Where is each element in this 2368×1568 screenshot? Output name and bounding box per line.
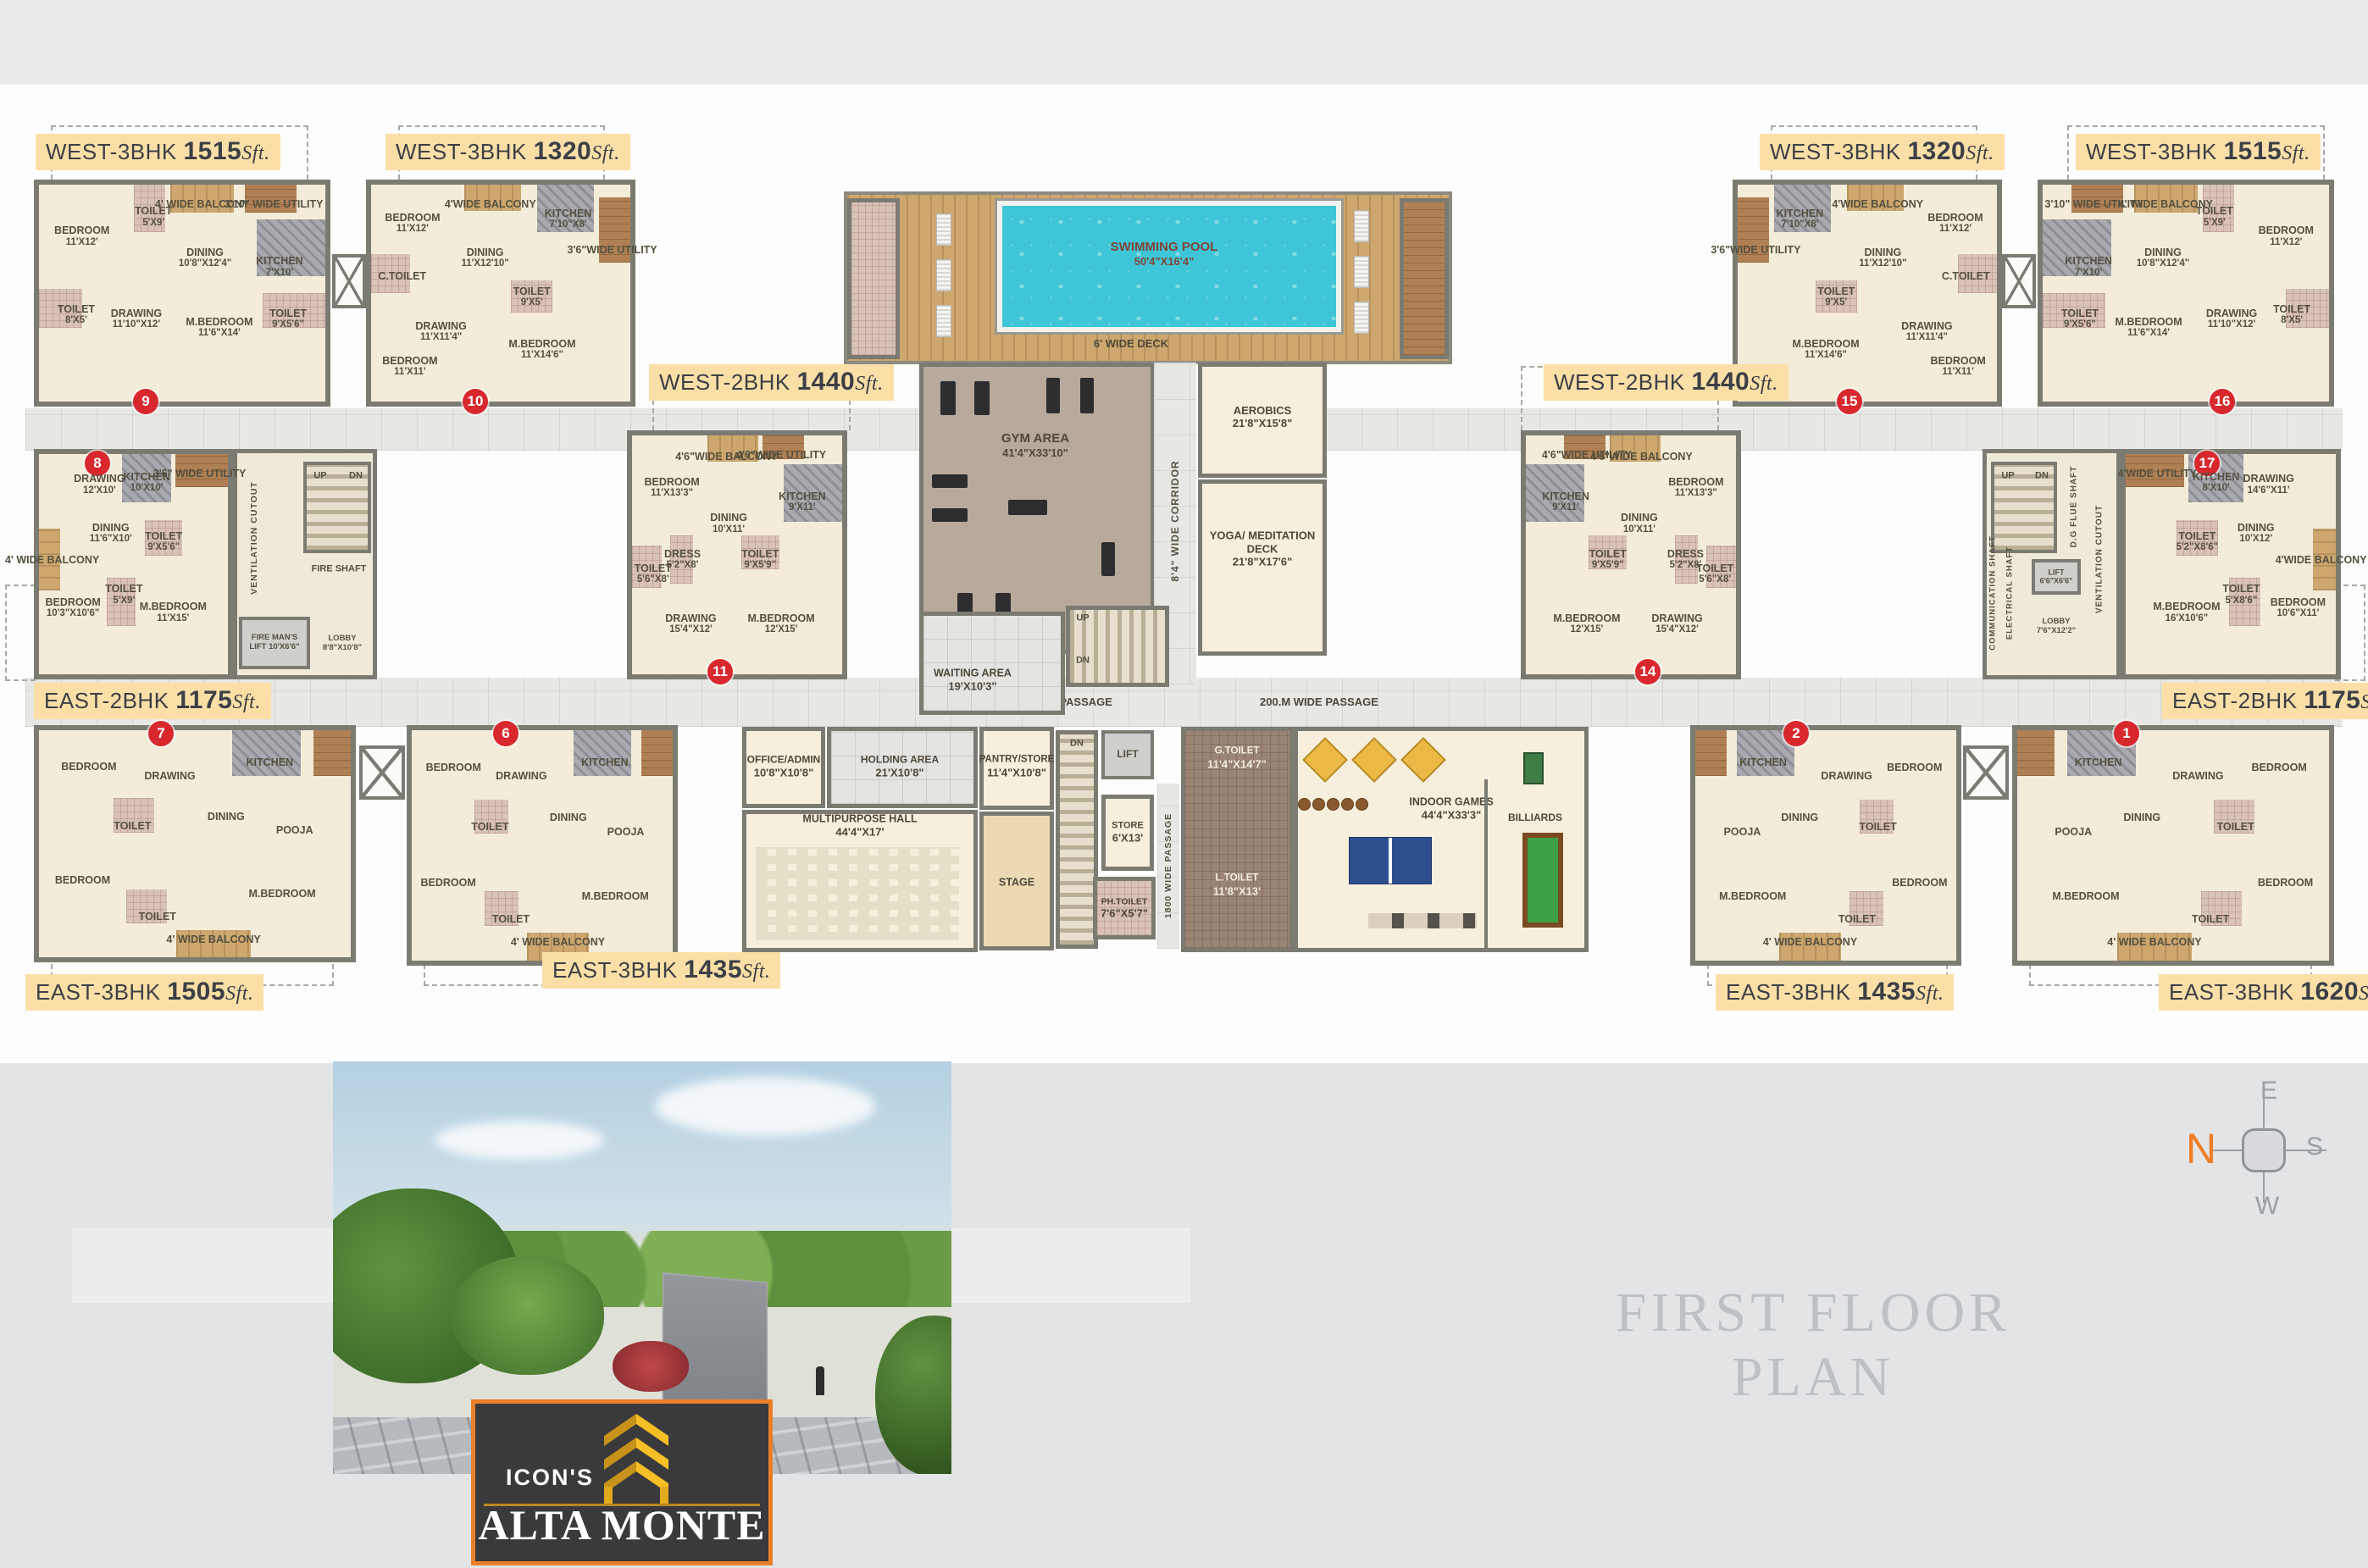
billiards-label: BILLIARDS (1508, 812, 1562, 823)
room-label: BEDROOM11'X12' (1927, 212, 1983, 235)
room-label: TOILET9'X5'6" (269, 308, 307, 331)
shaft-box (1963, 745, 2009, 800)
unit-label-16: WEST-3BHK 1515Sft. (2076, 134, 2321, 170)
room-label: KITCHEN (247, 756, 294, 767)
room-label: TOILET5'6"X8' (1696, 562, 1733, 586)
swimming-pool-label: SWIMMING POOL50'4"X16'4" (1111, 224, 1218, 284)
room-label: DRAWING (2172, 770, 2223, 782)
core-left-fireman-lift-label: FIRE MAN'S LIFT 10'X6'6" (242, 634, 307, 652)
photo-cloud (655, 1077, 875, 1136)
g-toilet-label: G.TOILET11'4"X14'7" (1207, 734, 1267, 783)
room-label: M.BEDROOM11'X14'6" (508, 338, 575, 362)
room-label: 4' WIDE BALCONY (511, 936, 605, 948)
unit-14: BEDROOM11'X13'3"4'6"WIDE BALCONY4'6"WIDE… (1521, 430, 1741, 679)
setback-line (5, 585, 36, 681)
shaft-box (359, 745, 405, 800)
table-tennis (1349, 837, 1432, 884)
gym-equipment (1046, 378, 1060, 413)
room-label: TOILET9'X5'9" (1589, 548, 1627, 572)
room-label: TOILET (2192, 913, 2229, 925)
core-right-up: UP (2001, 471, 2014, 482)
unit-16: BEDROOM11'X12'TOILET5'X9'4' WIDE BALCONY… (2038, 180, 2334, 407)
room-patch (313, 730, 351, 776)
passage-top-right (1326, 408, 2343, 451)
gym-equipment (932, 474, 968, 488)
room-label: DRAWING11'X11'4" (1901, 320, 1952, 344)
room-label: M.BEDROOM12'X15' (1553, 612, 1620, 636)
ph-toilet-label: PH.TOILET7'6"X5'7" (1101, 885, 1148, 930)
room-label: DINING (2123, 812, 2160, 823)
unit-label-7: EAST-3BHK 1505Sft. (25, 974, 263, 1011)
core-right-elec-shaft: ELECTRICAL SHAFT (2005, 546, 2015, 640)
shaft-box (2002, 254, 2036, 308)
stairs-dn-top-label: DN (1070, 739, 1084, 750)
room-label: DINING11'X12'10" (1859, 247, 1906, 270)
room-label: 4' WIDE BALCONY (1763, 936, 1857, 948)
compass-east: E (2260, 1077, 2277, 1105)
unit-number-16: 16 (2210, 389, 2235, 414)
store-label2: STORE6'X13' (1112, 809, 1144, 856)
photo-flower-bush (613, 1341, 689, 1392)
foosball-table (1523, 752, 1544, 784)
unit-number-8: 8 (85, 451, 110, 476)
room-label: M.BEDROOM11'6"X14' (186, 316, 252, 340)
room-label: DINING10'8"X12'4" (179, 247, 231, 270)
logo-name: ALTA MONTE (475, 1500, 768, 1549)
stairs-dn (1056, 730, 1098, 949)
hall-label: MULTIPURPOSE HALL44'4"X17' (802, 801, 917, 852)
room-label: DINING (208, 811, 245, 823)
unit-label-6: EAST-3BHK 1435Sft. (542, 952, 780, 989)
room-label: 3'6" WIDE UTILITY (153, 468, 247, 479)
room-label: BEDROOM11'X12' (2259, 225, 2314, 249)
office-admin-label: OFFICE/ADMIN10'8"X10'8" (747, 742, 821, 792)
stool (1298, 798, 1311, 811)
unit-17: DRAWING14'6"X11'KITCHEN8'X10'4'WIDE UTIL… (2121, 449, 2341, 679)
room-label: TOILET5'2"X8'6" (2176, 530, 2218, 554)
unit-2: BEDROOMDRAWINGKITCHENDININGTOILETBEDROOM… (1690, 725, 1961, 966)
room-label: TOILET5'X9' (105, 584, 142, 607)
core-left-lobby: LOBBY 8'8"X10'8" (313, 634, 372, 653)
billiards-partition (1484, 779, 1488, 952)
gym-equipment (940, 381, 956, 415)
room-label: 4'WIDE UTILITY (2118, 468, 2197, 479)
room-label: KITCHEN9'X11' (779, 490, 826, 514)
room-patch (2017, 730, 2055, 776)
unit-number-7: 7 (148, 721, 174, 746)
pool-changing-rooms (847, 198, 900, 359)
room-label: BEDROOM (426, 761, 481, 773)
core-right-lift-label: LIFT 6'6"X6'6" (2033, 568, 2079, 586)
room-label: BEDROOM (2251, 761, 2306, 773)
room-label: M.BEDROOM (582, 890, 649, 902)
passage-1800-label: 1800 WIDE PASSAGE (1163, 813, 1173, 918)
indoor-games-label: INDOOR GAMES44'4"X33'3" (1409, 784, 1493, 835)
room-label: 4'6"WIDE UTILITY (736, 448, 826, 460)
core-right-lobby: LOBBY 7'6"X12'2" (2027, 618, 2086, 636)
room-label: 4'WIDE BALCONY (445, 198, 536, 210)
room-label: KITCHEN (1739, 756, 1787, 768)
pool-lounger (1354, 256, 1369, 288)
brand-logo: ICON'S ALTA MONTE (471, 1399, 773, 1565)
room-label: M.BEDROOM12'X15' (747, 612, 814, 636)
stairs-up-label: UP (1076, 613, 1089, 624)
room-label: DINING (550, 812, 587, 823)
stairs-dn-label: DN (1076, 656, 1090, 667)
unit-number-14: 14 (1635, 659, 1661, 684)
pantry-label: PANTRY/STORE11'4"X10'8" (979, 743, 1055, 791)
room-label: BEDROOM10'3"X10'6" (45, 596, 100, 620)
pool-lounger (1354, 210, 1369, 242)
room-label: TOILET (471, 821, 508, 833)
room-label: 4' WIDE BALCONY (2107, 936, 2201, 948)
room-label: DRAWING12'X10' (74, 474, 125, 497)
room-label: TOILET9'X5'6" (2061, 308, 2099, 331)
room-label: KITCHEN7'10"X8' (545, 208, 592, 231)
room-patch (574, 730, 631, 776)
room-label: TOILET8'X5' (58, 303, 95, 327)
unit-label-2: EAST-3BHK 1435Sft. (1716, 974, 1954, 1011)
lift-label: LIFT (1117, 749, 1138, 761)
core-left-fire-shaft: FIRE SHAFT (312, 564, 367, 575)
room-label: POOJA (276, 824, 313, 836)
unit-label-17: EAST-2BHK 1175Sft. (2162, 683, 2368, 719)
room-patch (641, 730, 673, 776)
unit-label-15: WEST-3BHK 1320Sft. (1760, 134, 2005, 170)
room-label: C.TOILET (1942, 269, 1990, 281)
deck-planter (1400, 198, 1449, 359)
unit-number-15: 15 (1837, 389, 1862, 414)
unit-label-11: WEST-2BHK 1440Sft. (649, 364, 894, 401)
room-label: M.BEDROOM (1719, 890, 1786, 902)
room-label: TOILET9'X5' (513, 285, 551, 309)
room-label: DRAWING (496, 770, 546, 782)
shaft-box (332, 254, 366, 308)
stool (1327, 798, 1339, 811)
pool-lounger (936, 305, 951, 337)
unit-label-1: EAST-3BHK 1620Sft. (2159, 974, 2368, 1011)
room-label: DRAWING15'4"X12' (665, 612, 716, 636)
room-label: POOJA (1724, 825, 1761, 837)
yoga-label: YOGA/ MEDITATION DECK21'8"X17'6" (1203, 529, 1322, 569)
room-label: DRAWING (144, 769, 195, 781)
room-label: KITCHEN (2075, 756, 2122, 768)
corridor-label: 8'4" WIDE CORRIDOR (1169, 460, 1181, 581)
billiards-table (1522, 833, 1563, 928)
passage-main (25, 678, 2343, 727)
core-right-comm-shaft: COMMUNICATION SHAFT (1988, 535, 1998, 650)
deck-label: 6' WIDE DECK (1094, 337, 1168, 351)
room-label: M.BEDROOM16'X10'6" (2153, 601, 2220, 624)
floor-plan-page: 200.M WIDE PASSAGE 200.M WIDE PASSAGE SW… (0, 0, 2368, 1568)
pool-lounger (936, 259, 951, 291)
room-label: DINING (1781, 812, 1818, 823)
room-label: BEDROOM (2258, 876, 2313, 888)
unit-6: BEDROOMDRAWINGKITCHENDININGTOILETBEDROOM… (407, 725, 678, 966)
room-label: M.BEDROOM (2052, 890, 2119, 902)
photo-foliage (452, 1256, 604, 1375)
stool (1341, 798, 1354, 811)
room-label: BEDROOM10'6"X11' (2271, 596, 2326, 620)
room-label: 3'6"WIDE UTILITY (1711, 244, 1800, 256)
room-label: 4'WIDE BALCONY (1832, 198, 1923, 210)
room-label: KITCHEN (581, 756, 629, 768)
unit-number-10: 10 (463, 389, 488, 414)
room-label: TOILET (2216, 821, 2254, 833)
room-label: TOILET5'6"X8' (635, 562, 672, 586)
core-left-ventilation: VENTILATION CUTOUT (249, 481, 259, 595)
aerobics-label: AEROBICS21'8"X15'8" (1233, 391, 1293, 443)
room-label: 4' WIDE BALCONY (5, 554, 99, 566)
stool (1312, 798, 1325, 811)
compass-west: W (2255, 1192, 2279, 1221)
room-label: DRAWING11'10"X12' (2206, 308, 2257, 331)
room-label: TOILET5'X8'6" (2222, 584, 2260, 607)
room-label: M.BEDROOM (248, 888, 315, 900)
room-label: BEDROOM11'X11' (1930, 355, 1985, 379)
compass-rose (2242, 1128, 2286, 1172)
room-label: TOILET (114, 819, 151, 831)
unit-label-10: WEST-3BHK 1320Sft. (385, 134, 630, 170)
room-label: DRAWING15'4"X12' (1651, 612, 1702, 636)
room-label: C.TOILET (378, 269, 426, 281)
room-label: DINING10'X12' (2238, 522, 2275, 546)
room-label: POOJA (2055, 825, 2092, 837)
room-label: DINING11'6"X10' (90, 522, 132, 546)
unit-11: BEDROOM11'X13'3"4'6"WIDE BALCONY4'6"WIDE… (627, 430, 847, 679)
room-label: DINING10'8"X12'4" (2137, 247, 2189, 270)
page-title: FIRST FLOOR PLAN (1525, 1281, 2101, 1410)
gym-equipment (974, 381, 990, 415)
unit-number-6: 6 (493, 721, 519, 746)
header-band (0, 0, 2368, 85)
room-label: DRAWING11'X11'4" (415, 320, 466, 344)
room-label: M.BEDROOM11'X15' (140, 601, 207, 624)
unit-9: BEDROOM11'X12'TOILET5'X9'4' WIDE BALCONY… (34, 180, 330, 407)
room-label: BEDROOM (55, 874, 110, 886)
room-label: M.BEDROOM11'X14'6" (1792, 338, 1859, 362)
room-label: KITCHEN7'X10' (2065, 255, 2112, 279)
room-label: BEDROOM11'X12' (385, 212, 440, 235)
logo-brand: ICON'S (506, 1465, 594, 1491)
room-label: BEDROOM (61, 761, 116, 773)
holding-label: HOLDING AREA21'X10'8" (861, 742, 939, 792)
unit-10: BEDROOM11'X12'C.TOILET4'WIDE BALCONYKITC… (366, 180, 635, 407)
room-label: TOILET (139, 911, 176, 923)
room-label: DINING11'X12'10" (461, 247, 508, 270)
room-label: BEDROOM11'X12' (54, 225, 109, 249)
room-label: 3'6"WIDE UTILITY (568, 244, 657, 256)
gym-equipment (932, 508, 968, 522)
room-label: 4' WIDE BALCONY (166, 933, 260, 945)
pool-lounger (1354, 302, 1369, 334)
unit-8: DRAWING12'X10'KITCHEN10'X10'3'6" WIDE UT… (34, 449, 233, 679)
room-label: TOILET9'X5'6" (145, 530, 182, 554)
room-patch (1695, 730, 1727, 776)
unit-label-9: WEST-3BHK 1515Sft. (36, 134, 280, 170)
room-label: BEDROOM (1892, 876, 1947, 888)
core-left-dn: DN (349, 471, 363, 482)
room-label: TOILET (1838, 913, 1876, 925)
unit-number-9: 9 (133, 389, 158, 414)
unit-number-11: 11 (707, 659, 733, 684)
room-label: BEDROOM11'X11' (382, 355, 437, 379)
waiting-label: WAITING AREA19'X10'3" (934, 655, 1012, 706)
gym-equipment (1101, 542, 1115, 576)
room-label: TOILET9'X5' (1817, 285, 1855, 309)
passage-label-right: 200.M WIDE PASSAGE (1260, 695, 1378, 709)
room-label: M.BEDROOM11'6"X14' (2115, 316, 2182, 340)
room-label: TOILET (1859, 821, 1896, 833)
core-left-up: UP (313, 471, 326, 482)
room-label: DRAWING (1821, 770, 1872, 782)
room-label: BEDROOM11'X13'3" (1668, 476, 1723, 500)
room-label: KITCHEN9'X11' (1542, 490, 1589, 514)
room-label: BEDROOM (1887, 761, 1942, 773)
room-label: DINING10'X11' (1621, 513, 1658, 536)
unit-label-14: WEST-2BHK 1440Sft. (1544, 364, 1788, 401)
hall-chairs (756, 847, 959, 940)
core-right-dg-flue: D.G FLUE SHAFT (2070, 466, 2079, 548)
unit-label-8: EAST-2BHK 1175Sft. (34, 683, 271, 719)
stool (1356, 798, 1368, 811)
room-label: TOILET8'X5' (2273, 303, 2310, 327)
photo-cloud (435, 1121, 604, 1160)
room-patch (232, 730, 301, 776)
room-label: TOILET (492, 913, 530, 925)
core-right-ventilation: VENTILATION CUTOUT (2095, 505, 2105, 613)
room-label: 4'6"WIDE UTILITY (1542, 448, 1632, 460)
room-label: POOJA (607, 825, 645, 837)
gym-label: GYM AREA41'4"X33'10" (1001, 416, 1069, 475)
pool-lounger (936, 213, 951, 246)
core-right-dn: DN (2035, 471, 2049, 482)
compass-south: S (2306, 1133, 2323, 1161)
room-label: 3'10" WIDE UTILITY (2045, 198, 2144, 210)
room-label: DRAWING11'10"X12' (111, 308, 162, 331)
room-label: DRAWING14'6"X11' (2243, 474, 2293, 497)
room-label: TOILET9'X5'9" (741, 548, 779, 572)
games-row (1368, 913, 1477, 928)
compass-north: N (2186, 1124, 2216, 1173)
room-label: KITCHEN7'10"X8' (1777, 208, 1824, 231)
unit-7: BEDROOMDRAWINGKITCHENDININGTOILETBEDROOM… (34, 725, 356, 962)
stage-label: STAGE (999, 877, 1034, 889)
room-label: DINING10'X11' (710, 513, 747, 536)
room-label: 3'10" WIDE UTILITY (225, 198, 324, 210)
unit-1: BEDROOMDRAWINGKITCHENDININGTOILETBEDROOM… (2012, 725, 2334, 966)
gym-equipment (1008, 500, 1047, 515)
unit-number-2: 2 (1783, 721, 1809, 746)
logo-building-icon (602, 1412, 670, 1507)
room-label: KITCHEN8'X10' (2193, 471, 2240, 495)
photo-person (816, 1366, 824, 1395)
l-toilet-label: L.TOILET11'8"X13' (1213, 862, 1261, 910)
room-label: BEDROOM (420, 876, 475, 888)
gym-equipment (1080, 378, 1094, 413)
unit-number-1: 1 (2114, 721, 2139, 746)
room-label: BEDROOM11'X13'3" (644, 476, 699, 500)
room-label: KITCHEN7'X10' (256, 255, 303, 279)
room-label: 4'WIDE BALCONY (2276, 554, 2367, 566)
